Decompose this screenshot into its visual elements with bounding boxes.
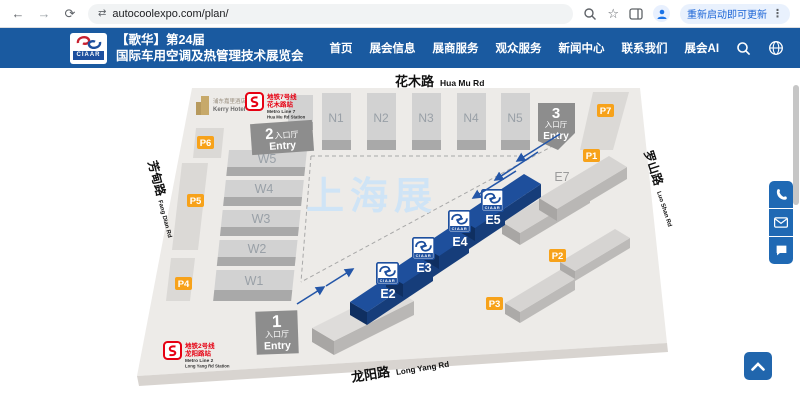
svg-text:Luo Shan Rd: Luo Shan Rd bbox=[655, 191, 672, 228]
nav-contact-us[interactable]: 联系我们 bbox=[622, 40, 668, 56]
chat-icon bbox=[775, 244, 788, 257]
search-icon[interactable] bbox=[736, 41, 751, 56]
hall-label-w4: W4 bbox=[255, 182, 274, 196]
ciaar-badge-icon bbox=[482, 190, 503, 211]
ciaar-logo-text: CIAAR bbox=[73, 51, 104, 60]
profile-avatar[interactable] bbox=[653, 5, 670, 22]
svg-text:P7: P7 bbox=[600, 106, 612, 117]
hall-label-e3: E3 bbox=[416, 261, 431, 275]
svg-text:花木路站: 花木路站 bbox=[267, 100, 294, 109]
hall-label-n3: N3 bbox=[418, 111, 434, 125]
back-to-top-button[interactable] bbox=[744, 352, 772, 380]
contact-widget bbox=[769, 181, 793, 264]
mail-icon bbox=[774, 217, 788, 228]
language-globe-icon[interactable] bbox=[768, 40, 784, 56]
hall-label-w3: W3 bbox=[252, 212, 271, 226]
bookmark-star-icon[interactable]: ☆ bbox=[607, 6, 619, 22]
svg-text:龙阳路站: 龙阳路站 bbox=[184, 349, 212, 358]
hall-label-w2: W2 bbox=[248, 242, 267, 256]
svg-text:P3: P3 bbox=[489, 299, 501, 310]
svg-text:地铁7号线: 地铁7号线 bbox=[267, 92, 297, 101]
svg-text:花木路: 花木路 bbox=[395, 74, 435, 89]
hall-label-n1: N1 bbox=[328, 111, 344, 125]
svg-text:Entry: Entry bbox=[269, 139, 297, 153]
site-info-icon[interactable]: ⇄ bbox=[98, 8, 106, 19]
browser-toolbar: ← → ⟳ ⇄ autocoolexpo.com/plan/ ☆ 重新启动即可更… bbox=[0, 0, 800, 28]
ciaar-badge-icon bbox=[413, 238, 434, 259]
back-icon[interactable]: ← bbox=[10, 6, 26, 21]
svg-text:1: 1 bbox=[272, 312, 282, 331]
site-title-line1: 【歌华】第24届 bbox=[116, 32, 304, 48]
svg-text:Hua Mu Rd: Hua Mu Rd bbox=[440, 78, 484, 88]
side-panel-icon[interactable] bbox=[629, 7, 643, 21]
ciaar-badge-icon bbox=[449, 211, 470, 232]
site-title: 【歌华】第24届 国际车用空调及热管理技术展览会 bbox=[116, 32, 304, 65]
hall-label-e4: E4 bbox=[452, 235, 467, 249]
phone-button[interactable] bbox=[769, 181, 793, 208]
forward-icon[interactable]: → bbox=[36, 6, 52, 21]
main-nav: 首页 展会信息 展商服务 观众服务 新闻中心 联系我们 展会AI bbox=[330, 40, 785, 56]
nav-home[interactable]: 首页 bbox=[330, 40, 353, 56]
nav-expo-ai[interactable]: 展会AI bbox=[685, 40, 720, 56]
svg-text:芳甸路: 芳甸路 bbox=[145, 159, 169, 199]
svg-text:P4: P4 bbox=[178, 279, 190, 290]
nav-exhibitor-services[interactable]: 展商服务 bbox=[433, 40, 479, 56]
hall-label-e5: E5 bbox=[485, 213, 500, 227]
road-label-huamu: 花木路 Hua Mu Rd bbox=[395, 74, 484, 89]
svg-text:P1: P1 bbox=[586, 151, 598, 162]
chat-button[interactable] bbox=[769, 237, 793, 264]
svg-text:Long Yang Rd Station: Long Yang Rd Station bbox=[185, 364, 230, 369]
person-icon bbox=[656, 8, 668, 20]
entry-1: 1 入口厅 Entry bbox=[255, 310, 298, 354]
hall-label-e7: E7 bbox=[554, 170, 569, 184]
watermark: 上海展 bbox=[306, 176, 438, 218]
chrome-menu-icon[interactable]: ⋮ bbox=[772, 7, 783, 20]
svg-text:P5: P5 bbox=[190, 196, 202, 207]
svg-text:入口厅: 入口厅 bbox=[265, 330, 289, 340]
svg-text:P6: P6 bbox=[200, 138, 212, 149]
ciaar-badge-icon bbox=[377, 263, 398, 284]
svg-text:Kerry Hotel: Kerry Hotel bbox=[213, 107, 246, 113]
address-bar[interactable]: ⇄ autocoolexpo.com/plan/ bbox=[88, 4, 573, 24]
site-header: CIAAR 【歌华】第24届 国际车用空调及热管理技术展览会 首页 展会信息 展… bbox=[0, 28, 800, 68]
svg-text:浦东嘉里酒店: 浦东嘉里酒店 bbox=[213, 97, 247, 105]
hall-label-n2: N2 bbox=[373, 111, 389, 125]
hall-label-w1: W1 bbox=[245, 274, 264, 288]
hall-label-n4: N4 bbox=[463, 111, 479, 125]
phone-icon bbox=[775, 188, 788, 201]
svg-text:地铁2号线: 地铁2号线 bbox=[185, 341, 215, 350]
nav-expo-info[interactable]: 展会信息 bbox=[370, 40, 416, 56]
chevron-up-icon bbox=[751, 362, 765, 371]
scrollbar-thumb[interactable] bbox=[793, 85, 799, 205]
zoom-icon[interactable] bbox=[583, 7, 597, 21]
svg-text:入口厅: 入口厅 bbox=[545, 120, 568, 129]
svg-text:Hua Mu Rd Station: Hua Mu Rd Station bbox=[267, 115, 306, 120]
url-text[interactable]: autocoolexpo.com/plan/ bbox=[112, 8, 228, 20]
nav-visitor-services[interactable]: 观众服务 bbox=[496, 40, 542, 56]
ciaar-logo[interactable]: CIAAR bbox=[70, 33, 107, 64]
svg-text:P2: P2 bbox=[552, 251, 564, 262]
email-button[interactable] bbox=[769, 209, 793, 236]
venue-map: CIAAR 花木路 Hua Mu Rd 芳甸路 Fang Dian Rd 罗山路… bbox=[0, 68, 800, 406]
ciaar-swirl-icon bbox=[75, 35, 103, 50]
entry-2: 2入口厅 Entry bbox=[250, 120, 314, 155]
hall-label-n5: N5 bbox=[507, 111, 523, 125]
hall-label-e2: E2 bbox=[380, 287, 395, 301]
nav-news-center[interactable]: 新闻中心 bbox=[559, 40, 605, 56]
chrome-update-button[interactable]: 重新启动即可更新 ⋮ bbox=[680, 4, 790, 24]
site-title-line2: 国际车用空调及热管理技术展览会 bbox=[116, 48, 304, 64]
venue-map-svg: CIAAR 花木路 Hua Mu Rd 芳甸路 Fang Dian Rd 罗山路… bbox=[0, 68, 800, 406]
svg-text:Entry: Entry bbox=[264, 340, 291, 353]
update-label: 重新启动即可更新 bbox=[687, 6, 767, 21]
reload-icon[interactable]: ⟳ bbox=[62, 6, 78, 22]
